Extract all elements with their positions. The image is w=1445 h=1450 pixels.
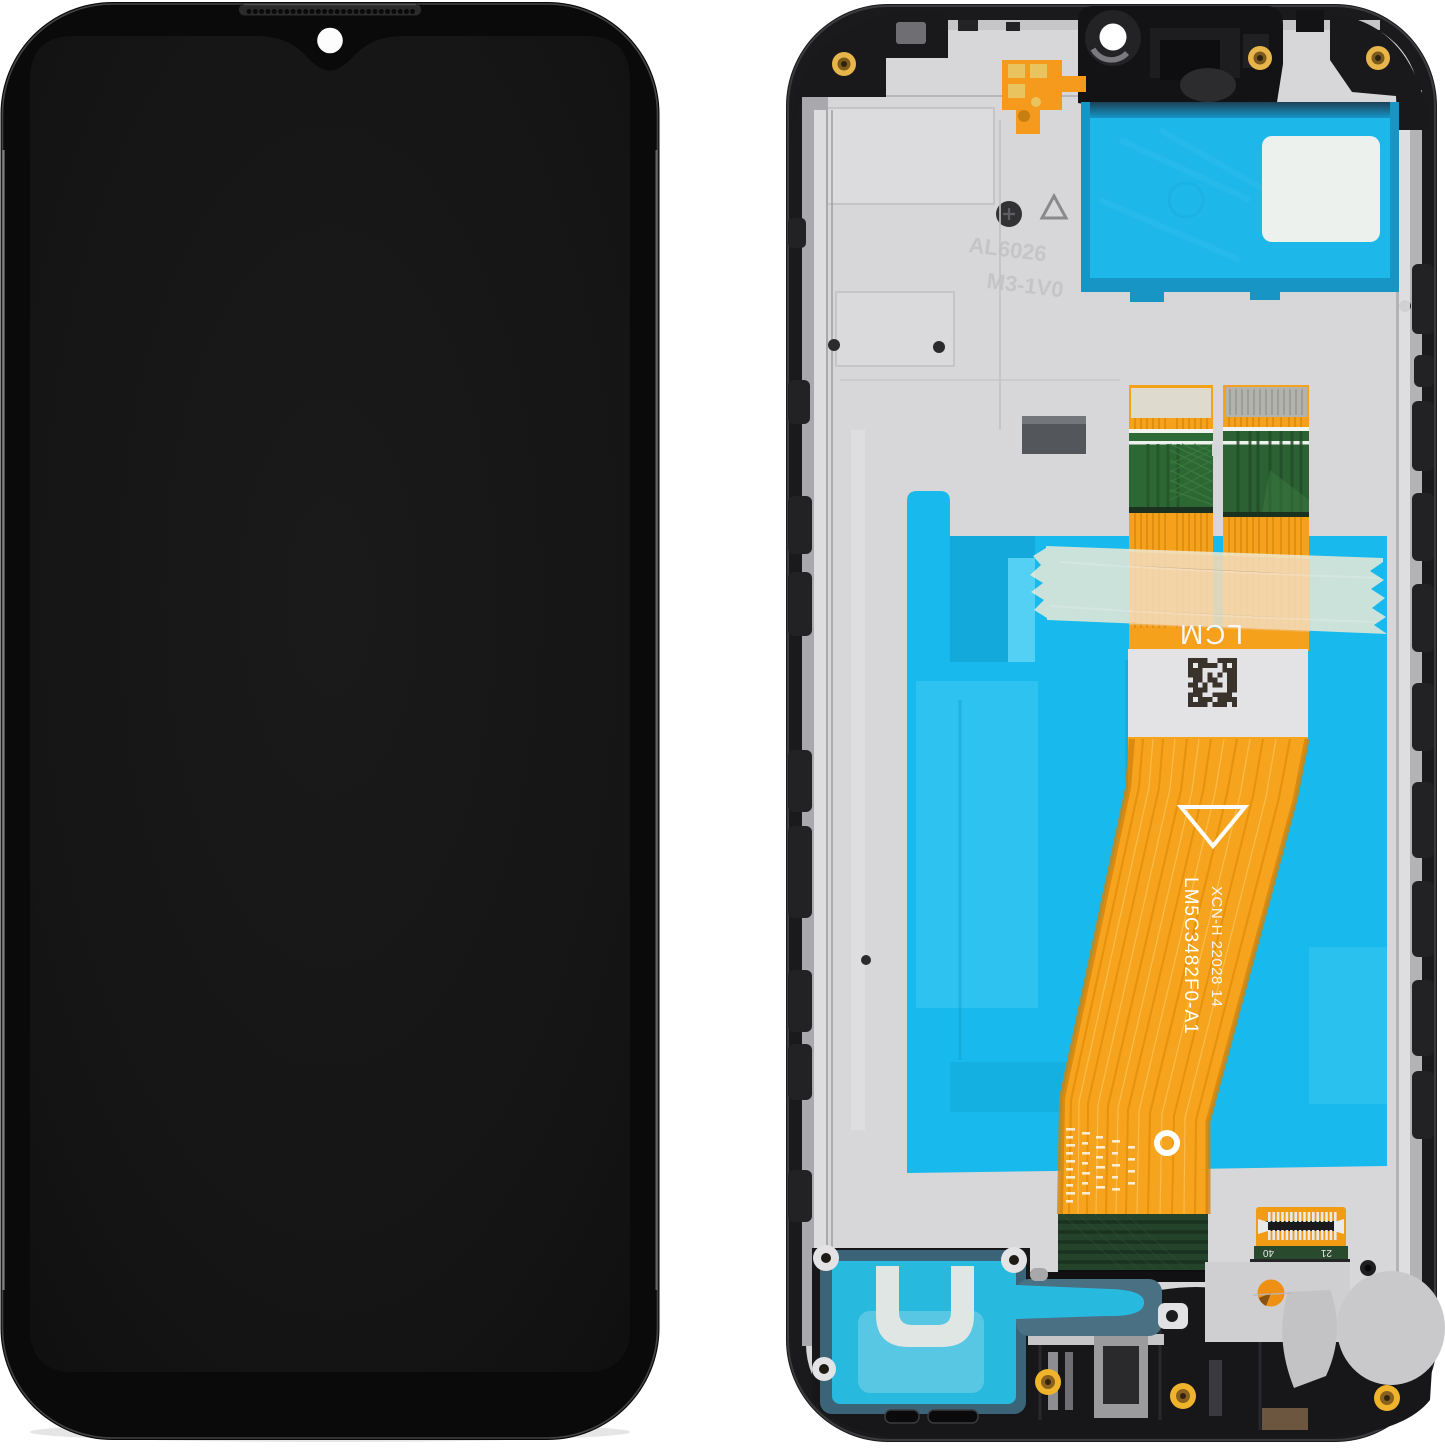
svg-text:LCM: LCM <box>1178 619 1243 650</box>
svg-text:40: 40 <box>1262 1247 1274 1258</box>
svg-text:LM5C3482F0-A1: LM5C3482F0-A1 <box>1180 877 1201 1035</box>
svg-text:XCN-H 22028 14: XCN-H 22028 14 <box>1208 886 1225 1007</box>
svg-text:21: 21 <box>1320 1247 1332 1258</box>
